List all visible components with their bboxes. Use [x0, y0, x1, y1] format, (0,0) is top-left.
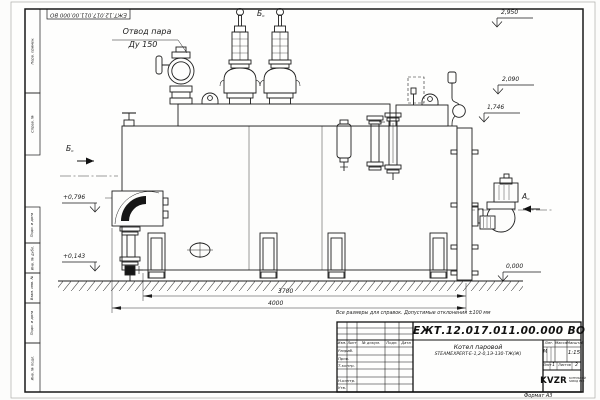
- elevation-0000: 0,000: [506, 264, 523, 270]
- front-hood: [112, 191, 168, 226]
- elevation-2090: 2,090: [502, 77, 519, 83]
- kvzr-logo-text: KVZR: [540, 376, 567, 386]
- boiler-drawing: [0, 0, 600, 400]
- listov-value: 2: [572, 364, 581, 368]
- row-tkontr: Т.контр.: [338, 364, 355, 368]
- list-value: 1: [550, 364, 557, 368]
- dim-4000-label: 4000: [268, 301, 283, 307]
- elevation-1746: 1,746: [487, 105, 504, 111]
- scale-value: 1:15: [567, 351, 581, 357]
- col-podp: Подп.: [385, 342, 399, 346]
- col-doc: № докум.: [357, 342, 385, 346]
- elevation-0143: +0,143: [63, 254, 85, 260]
- steam-outlet-label-line1: Отвод пара: [112, 28, 182, 36]
- masshtab-header: Масштаб: [567, 342, 581, 346]
- row-razrab: Разраб.: [338, 349, 353, 353]
- lit-header: Лит.: [543, 342, 555, 346]
- margin-box-sprav: Справ. №: [25, 93, 40, 155]
- product-name: Котел паровой: [413, 345, 543, 351]
- view-a-label: Аo: [522, 193, 529, 201]
- format-label: Формат А3: [524, 394, 552, 399]
- row-nkontr: Н.контр.: [338, 379, 355, 383]
- elevation-2950: 2,950: [501, 10, 518, 16]
- dim-3700-label: 3700: [278, 289, 293, 295]
- col-data: Дата: [399, 342, 413, 346]
- margin-box-vzam-inv: Взам. инв. №: [25, 273, 40, 303]
- steam-outlet-label-line2: Ду 150: [112, 41, 174, 49]
- burner-fins: [480, 216, 495, 229]
- margin-box-podp-data-1: Подп. и дата: [25, 207, 40, 243]
- col-izm: Изм.: [337, 342, 347, 346]
- kvzr-logo-subtext: КОТЕЛЬНЫЙ ЗАВОД РЭП: [569, 378, 586, 384]
- massa-header: Масса: [555, 342, 567, 346]
- margin-box-perv-primen: Перв. примен.: [25, 9, 40, 93]
- title-designation: ЕЖТ.12.017.011.00.000 ВО: [413, 326, 581, 337]
- boiler-shell: [122, 126, 457, 270]
- top-designation-box-label: ЕЖТ.12.017.011.00.000 ВО: [47, 9, 130, 19]
- reference-note: Все размеры для справок. Допустимые откл…: [336, 312, 491, 317]
- top-designation: ЕЖТ.12.017.011.00.000 ВО: [50, 11, 127, 17]
- col-list: Лист: [347, 342, 357, 346]
- product-model: STEAMEXPERT-Е-1,2-0,1Э-130-ТЖ(Ж): [413, 353, 543, 358]
- list-label: Лист: [543, 364, 550, 367]
- lit-value: М: [543, 351, 547, 356]
- view-b-left-label: Бo: [66, 145, 73, 153]
- rear-dome: [396, 105, 448, 126]
- row-prov: Пров.: [338, 357, 349, 361]
- top-platform: [178, 104, 390, 126]
- margin-box-inv-dubl: Инв. № дубл.: [25, 243, 40, 273]
- burner-motor: [494, 183, 518, 202]
- row-utv: Утв.: [338, 386, 346, 390]
- listov-label: Листов: [557, 364, 572, 367]
- company-logo-cell: KVZR КОТЕЛЬНЫЙ ЗАВОД РЭП: [543, 370, 581, 392]
- view-b-top-label: Бo: [257, 10, 264, 18]
- margin-box-inv-podl: Инв. № подл.: [25, 343, 40, 392]
- margin-box-podp-data-2: Подп. и дата: [25, 303, 40, 343]
- blowdown-valve: [125, 266, 135, 275]
- elevation-0796: +0,796: [63, 195, 85, 201]
- drawing-sheet: ЕЖТ.12.017.011.00.000 ВО Перв. примен. С…: [0, 0, 600, 400]
